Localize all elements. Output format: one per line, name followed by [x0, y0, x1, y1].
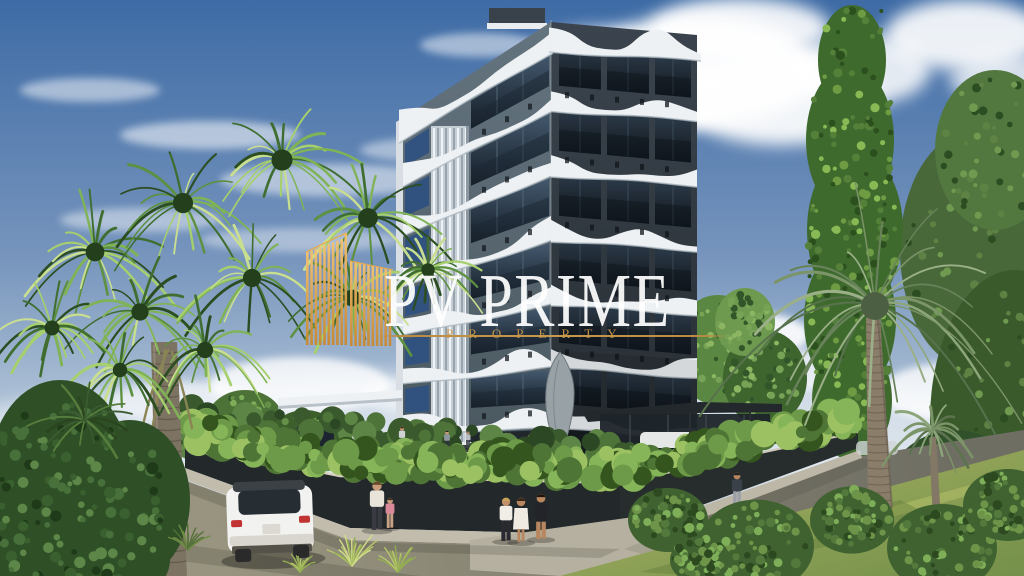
white-suv	[219, 479, 326, 571]
render-canvas	[0, 0, 1024, 576]
architectural-render-scene: PV PRIME PROPERTY	[0, 0, 1024, 576]
